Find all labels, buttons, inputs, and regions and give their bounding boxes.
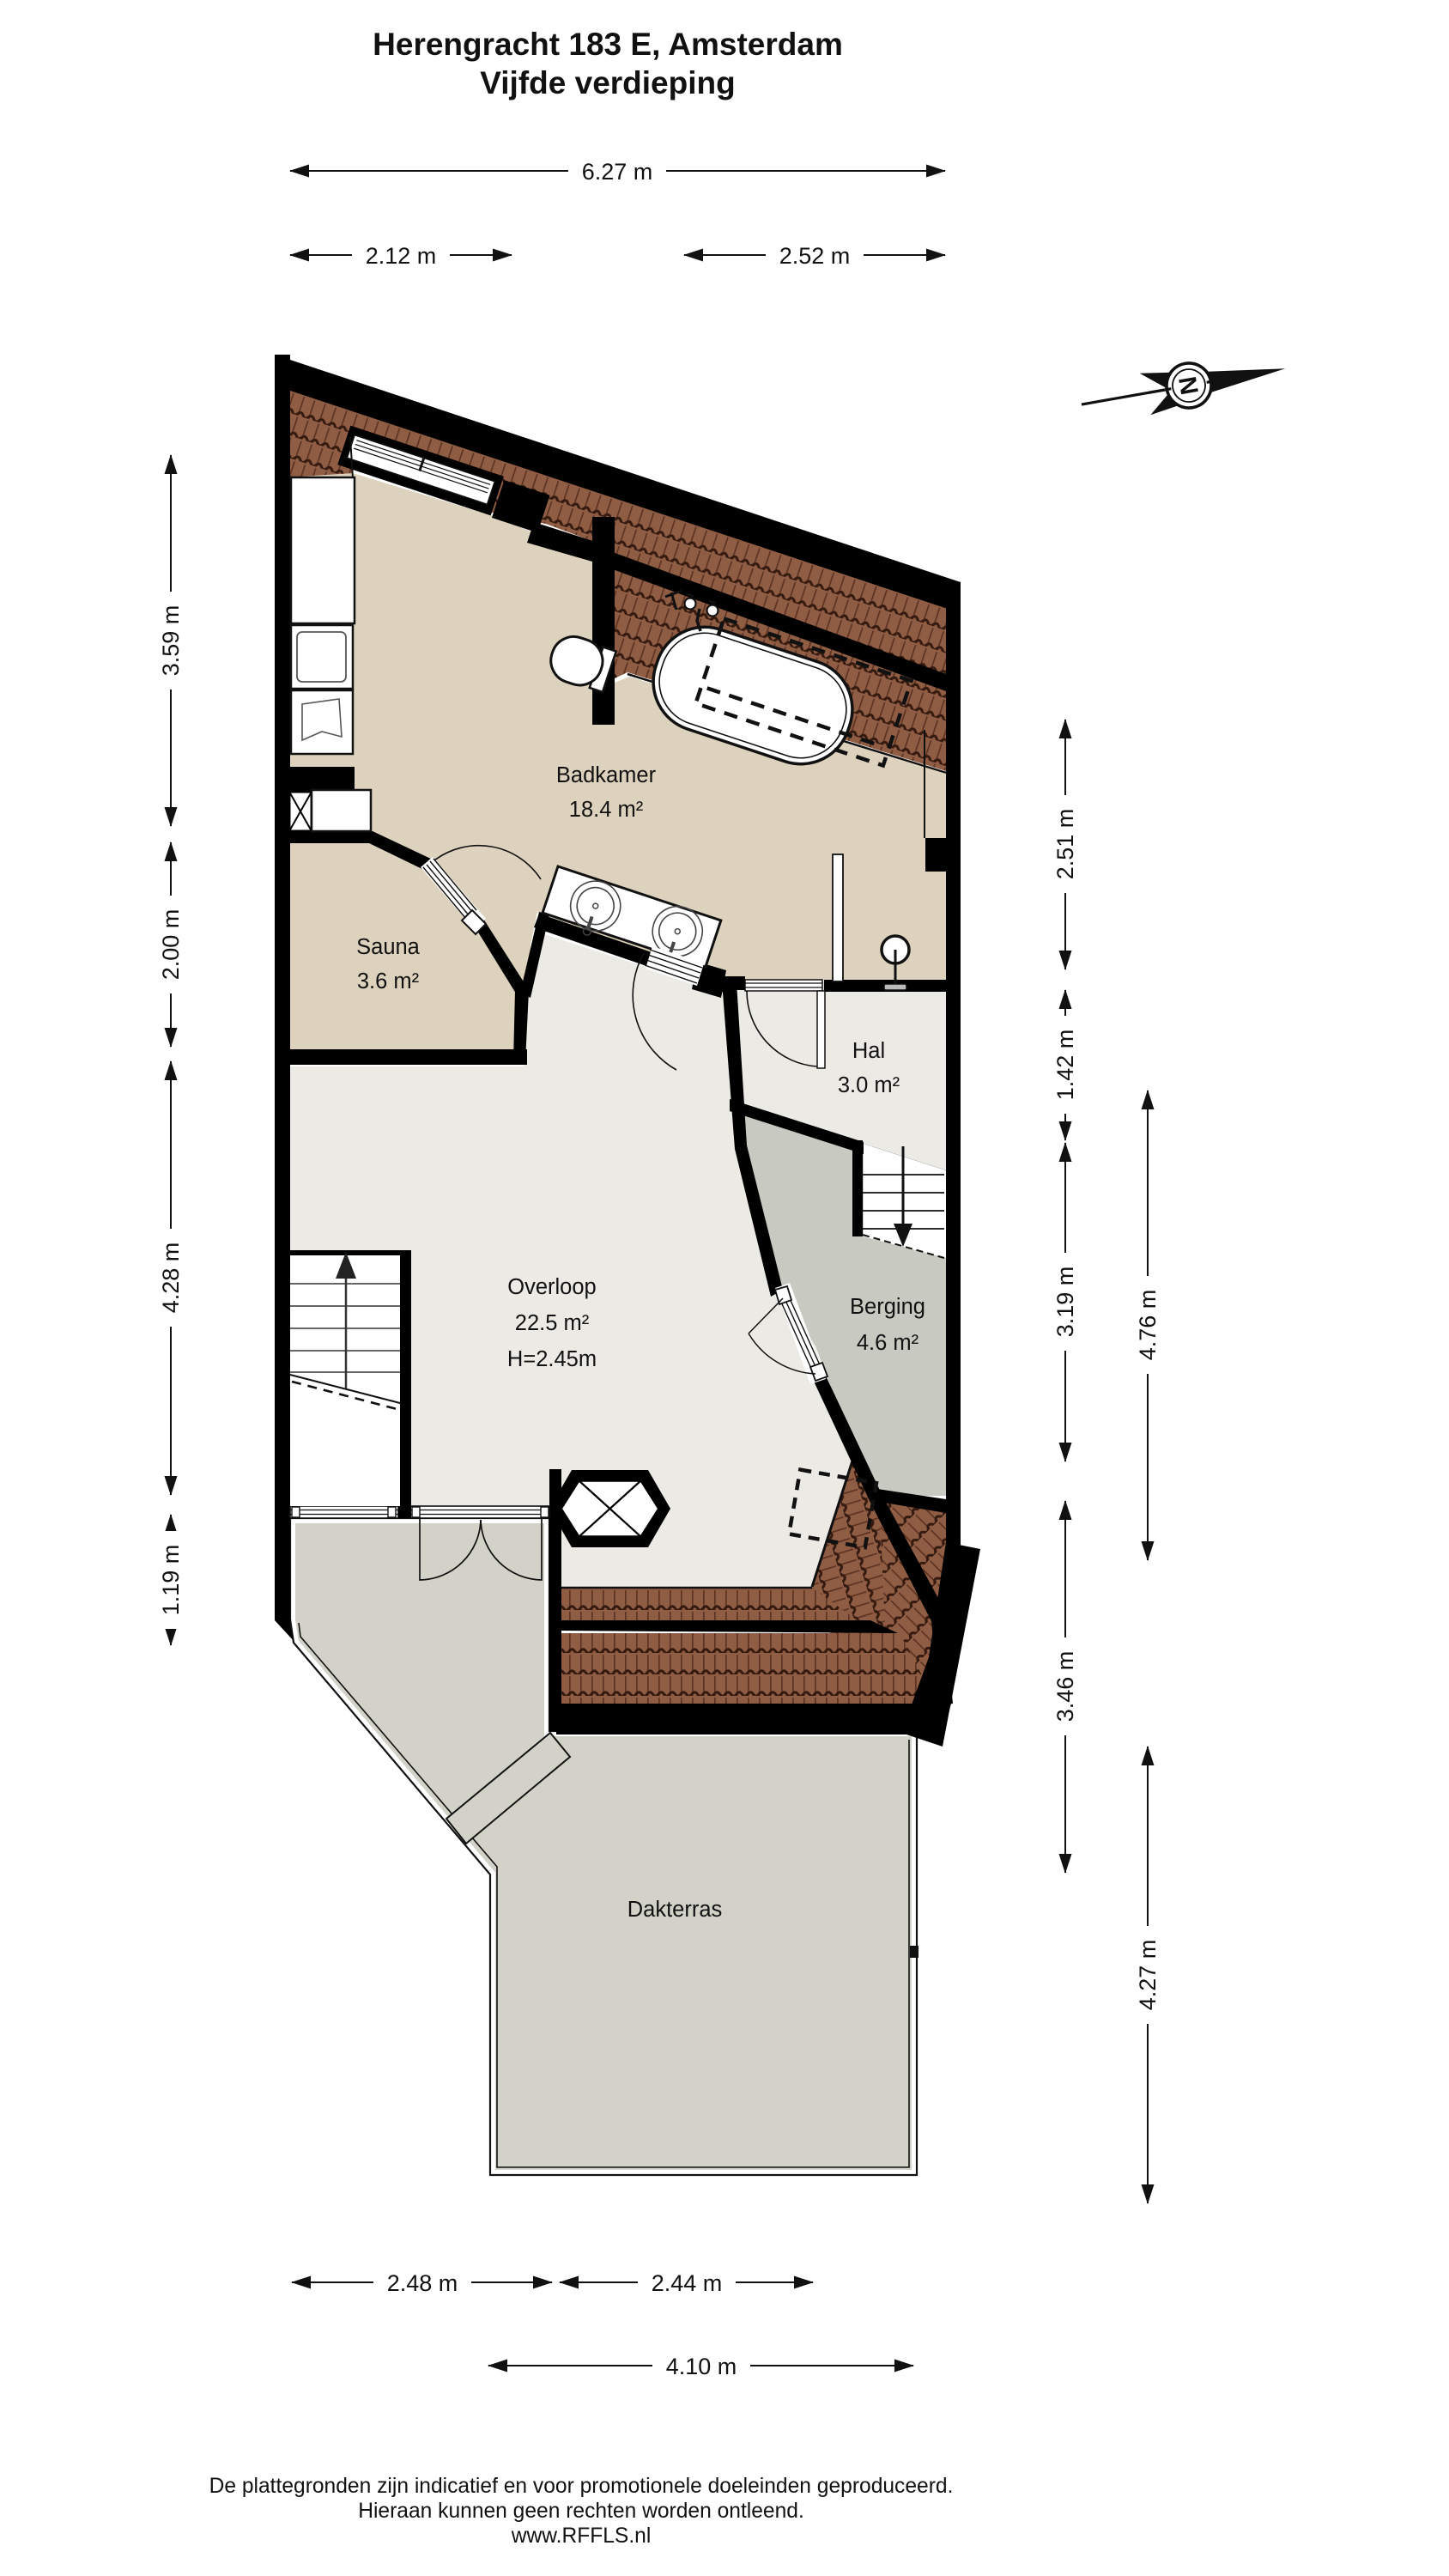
svg-text:2.44 m: 2.44 m — [652, 2270, 723, 2296]
svg-text:Hal: Hal — [852, 1039, 885, 1063]
svg-text:Herengracht 183 E, Amsterdam: Herengracht 183 E, Amsterdam — [373, 27, 843, 62]
svg-text:3.6 m²: 3.6 m² — [357, 969, 419, 993]
svg-text:Hieraan kunnen geen rechten wo: Hieraan kunnen geen rechten worden ontle… — [358, 2500, 804, 2523]
svg-text:2.52 m: 2.52 m — [779, 243, 851, 269]
svg-text:18.4 m²: 18.4 m² — [569, 798, 643, 822]
svg-text:4.10 m: 4.10 m — [666, 2354, 737, 2379]
svg-text:3.59 m: 3.59 m — [158, 605, 184, 677]
svg-text:Dakterras: Dakterras — [627, 1898, 723, 1922]
svg-text:6.27 m: 6.27 m — [582, 159, 653, 185]
svg-text:4.28 m: 4.28 m — [158, 1242, 184, 1314]
svg-text:2.48 m: 2.48 m — [387, 2270, 458, 2296]
svg-text:22.5 m²: 22.5 m² — [515, 1311, 589, 1335]
svg-text:3.0 m²: 3.0 m² — [838, 1073, 900, 1097]
svg-text:Badkamer: Badkamer — [556, 763, 657, 787]
svg-text:4.27 m: 4.27 m — [1135, 1940, 1161, 2011]
svg-text:3.46 m: 3.46 m — [1052, 1651, 1078, 1722]
svg-text:1.19 m: 1.19 m — [158, 1545, 184, 1616]
svg-text:3.19 m: 3.19 m — [1052, 1267, 1078, 1338]
svg-text:2.51 m: 2.51 m — [1052, 809, 1078, 880]
svg-text:2.12 m: 2.12 m — [366, 243, 437, 269]
svg-text:H=2.45m: H=2.45m — [507, 1347, 597, 1371]
svg-text:Berging: Berging — [850, 1295, 925, 1319]
svg-text:2.00 m: 2.00 m — [158, 909, 184, 981]
svg-text:Sauna: Sauna — [356, 935, 421, 959]
svg-text:De plattegronden zijn indicati: De plattegronden zijn indicatief en voor… — [209, 2475, 954, 2498]
svg-text:4.76 m: 4.76 m — [1135, 1290, 1161, 1361]
svg-text:4.6 m²: 4.6 m² — [857, 1331, 919, 1355]
svg-text:www.RFFLS.nl: www.RFFLS.nl — [511, 2524, 652, 2548]
svg-text:Vijfde verdieping: Vijfde verdieping — [480, 65, 735, 100]
svg-text:1.42 m: 1.42 m — [1052, 1030, 1078, 1101]
svg-text:Overloop: Overloop — [507, 1275, 596, 1299]
